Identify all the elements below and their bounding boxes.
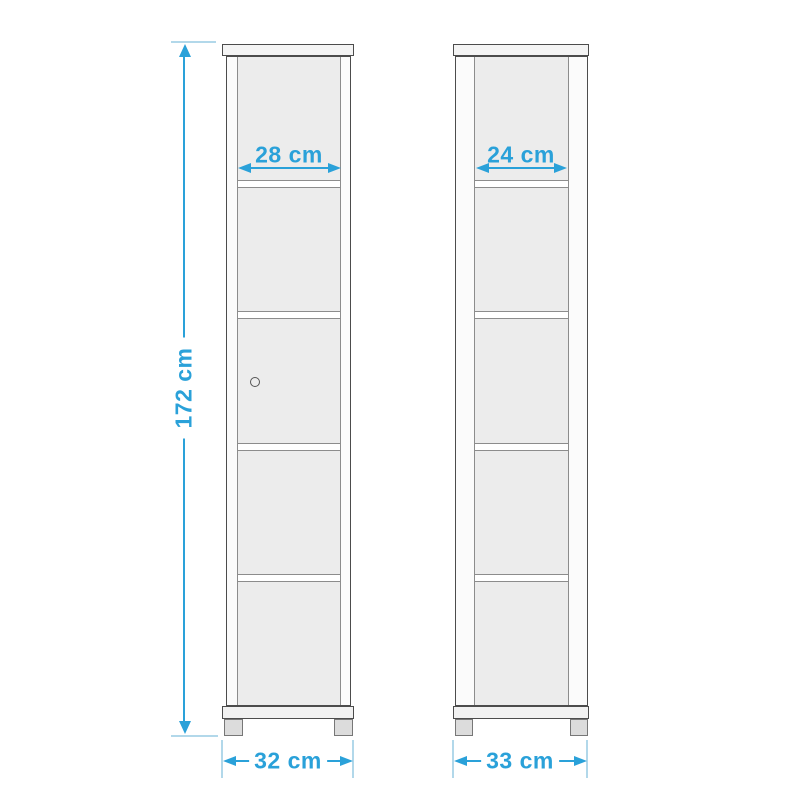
outer-width-dimension-label: 32 cm: [249, 750, 327, 773]
shelf-compartment: [475, 582, 568, 705]
arrow-right-icon: [328, 163, 341, 173]
arrow-right-icon: [340, 756, 353, 766]
shelf-divider: [475, 311, 568, 319]
shelf-compartment: [238, 188, 340, 311]
arrow-up-icon: [179, 44, 191, 57]
outer-depth-dimension-label: 33 cm: [481, 750, 559, 773]
side-right-foot: [570, 719, 588, 736]
arrow-down-icon: [179, 721, 191, 734]
front-left-foot: [224, 719, 243, 736]
inner-width-dimension-label: 28 cm: [255, 144, 323, 167]
shelf-divider: [238, 311, 340, 319]
shelf-divider: [475, 443, 568, 451]
front-top-panel: [222, 44, 354, 56]
inner-depth-dimension-label: 24 cm: [487, 144, 555, 167]
door-knob: [250, 377, 260, 387]
shelf-compartment: [238, 451, 340, 574]
shelf-compartment: [475, 188, 568, 311]
height-dimension-label: 172 cm: [173, 337, 196, 438]
furniture-dimension-diagram: 172 cm: [0, 0, 800, 800]
arrow-right-icon: [554, 163, 567, 173]
shelf-compartment: [475, 319, 568, 442]
shelf-divider: [475, 180, 568, 188]
shelf-compartment: [238, 582, 340, 705]
side-left-foot: [455, 719, 473, 736]
side-plinth: [453, 706, 589, 719]
arrow-right-icon: [574, 756, 587, 766]
front-right-foot: [334, 719, 353, 736]
front-plinth: [222, 706, 354, 719]
shelf-divider: [238, 574, 340, 582]
height-dimension-tick-top: [171, 41, 216, 43]
shelf-divider: [238, 443, 340, 451]
shelf-divider: [475, 574, 568, 582]
shelf-compartment: [475, 451, 568, 574]
height-dimension-tick-bottom: [171, 735, 218, 737]
side-top-panel: [453, 44, 589, 56]
shelf-divider: [238, 180, 340, 188]
